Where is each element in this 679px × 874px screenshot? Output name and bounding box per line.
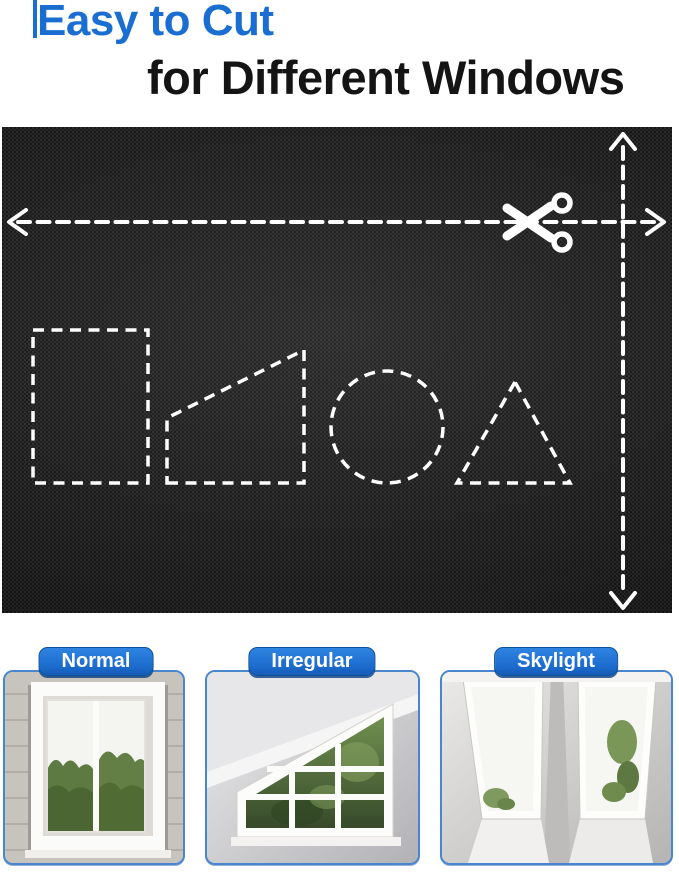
title-line-2: for Different Windows bbox=[147, 50, 624, 105]
blackout-fabric-panel bbox=[2, 127, 672, 613]
card-normal-window bbox=[3, 670, 185, 865]
skylight-window-illustration bbox=[442, 672, 671, 863]
product-infographic: Easy to Cut for Different Windows bbox=[0, 0, 679, 874]
card-skylight-window bbox=[440, 670, 673, 865]
vertical-cut-line bbox=[611, 134, 635, 608]
card-irregular-window bbox=[205, 670, 420, 865]
cut-shape-triangle bbox=[457, 382, 570, 483]
title-line-1: Easy to Cut bbox=[37, 0, 274, 46]
label-skylight: Skylight bbox=[494, 647, 618, 676]
cut-shape-circle bbox=[331, 371, 443, 483]
irregular-window-illustration bbox=[207, 672, 418, 863]
label-irregular: Irregular bbox=[248, 647, 375, 676]
cut-shape-trapezoid bbox=[167, 350, 304, 483]
label-normal: Normal bbox=[39, 647, 154, 676]
arrow-down-icon bbox=[611, 593, 635, 608]
cut-guides-overlay bbox=[2, 127, 672, 613]
cut-shape-rectangle bbox=[33, 330, 148, 483]
horizontal-cut-line bbox=[9, 210, 664, 234]
normal-window-illustration bbox=[5, 672, 183, 863]
